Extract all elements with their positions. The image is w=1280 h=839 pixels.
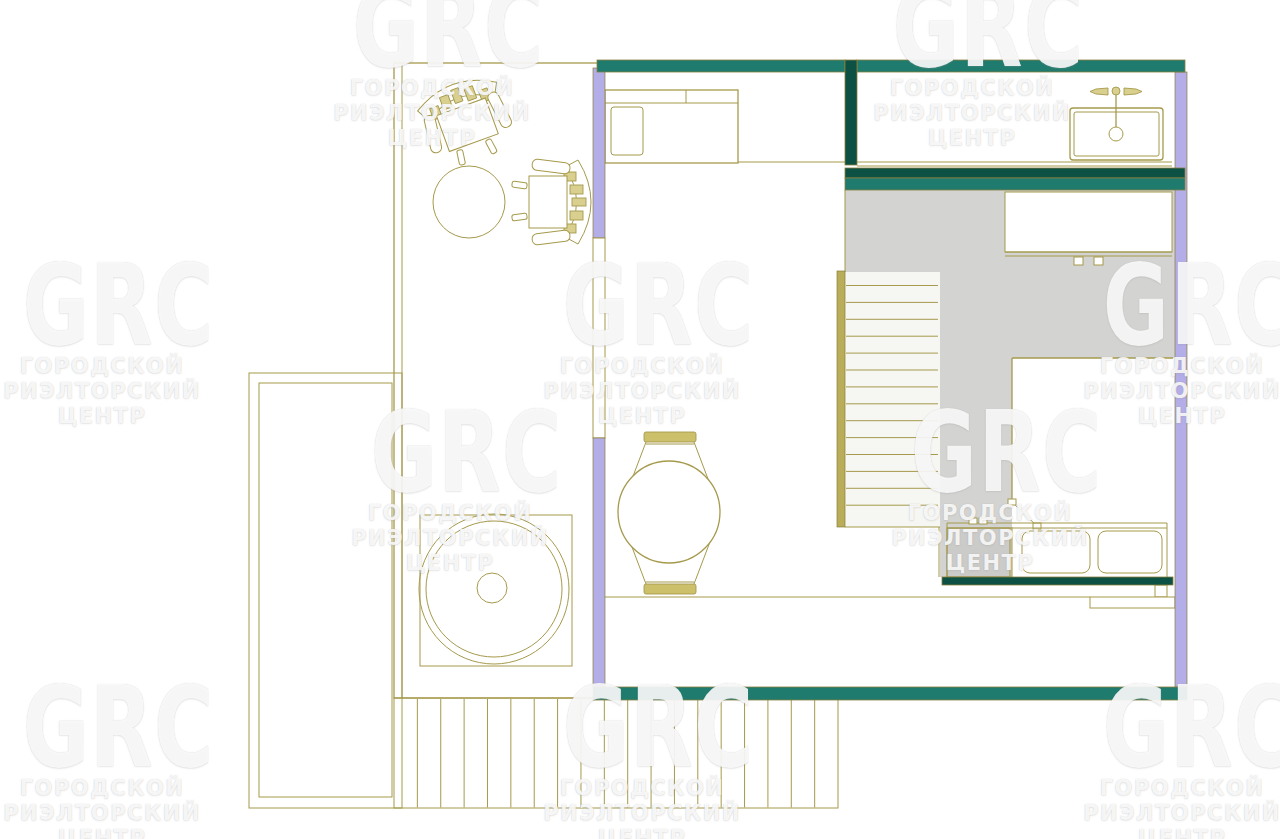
armchair xyxy=(412,70,520,174)
deck-planks xyxy=(417,699,814,808)
bed xyxy=(605,90,738,163)
wall-bottom xyxy=(593,687,1187,700)
window-right xyxy=(1175,72,1187,687)
jacuzzi xyxy=(419,514,572,666)
balcony xyxy=(249,373,402,808)
wall-top-left xyxy=(597,60,845,72)
wall-bathroom-dark xyxy=(845,168,1185,178)
wall-top-right xyxy=(857,60,1185,72)
wall-bathroom xyxy=(845,178,1185,190)
floor-plan-drawing xyxy=(0,0,1280,839)
coffee-table xyxy=(433,166,505,238)
terrace-deck xyxy=(394,698,838,808)
staircase xyxy=(837,271,940,527)
dining-table xyxy=(618,461,720,563)
faucet-handle-right xyxy=(1124,88,1142,95)
exterior-step xyxy=(1090,585,1175,608)
sink-basin-right xyxy=(1098,531,1162,573)
window-mullion xyxy=(593,238,605,438)
wall-interior-vertical xyxy=(845,60,857,165)
faucet-handle-left xyxy=(1090,88,1108,95)
window-left-lower xyxy=(593,438,605,687)
stair-rail xyxy=(837,271,845,527)
bathroom-sink xyxy=(1070,87,1163,160)
floor-plan-canvas: GRCГОРОДСКОЙРИЭЛТОРСКИЙЦЕНТРGRCГОРОДСКОЙ… xyxy=(0,0,1280,839)
side-chair xyxy=(512,159,591,246)
window-left-upper xyxy=(593,68,605,238)
bathroom xyxy=(857,87,1172,166)
wall-kitchen xyxy=(942,577,1173,585)
sink-basin-left xyxy=(1022,531,1090,573)
